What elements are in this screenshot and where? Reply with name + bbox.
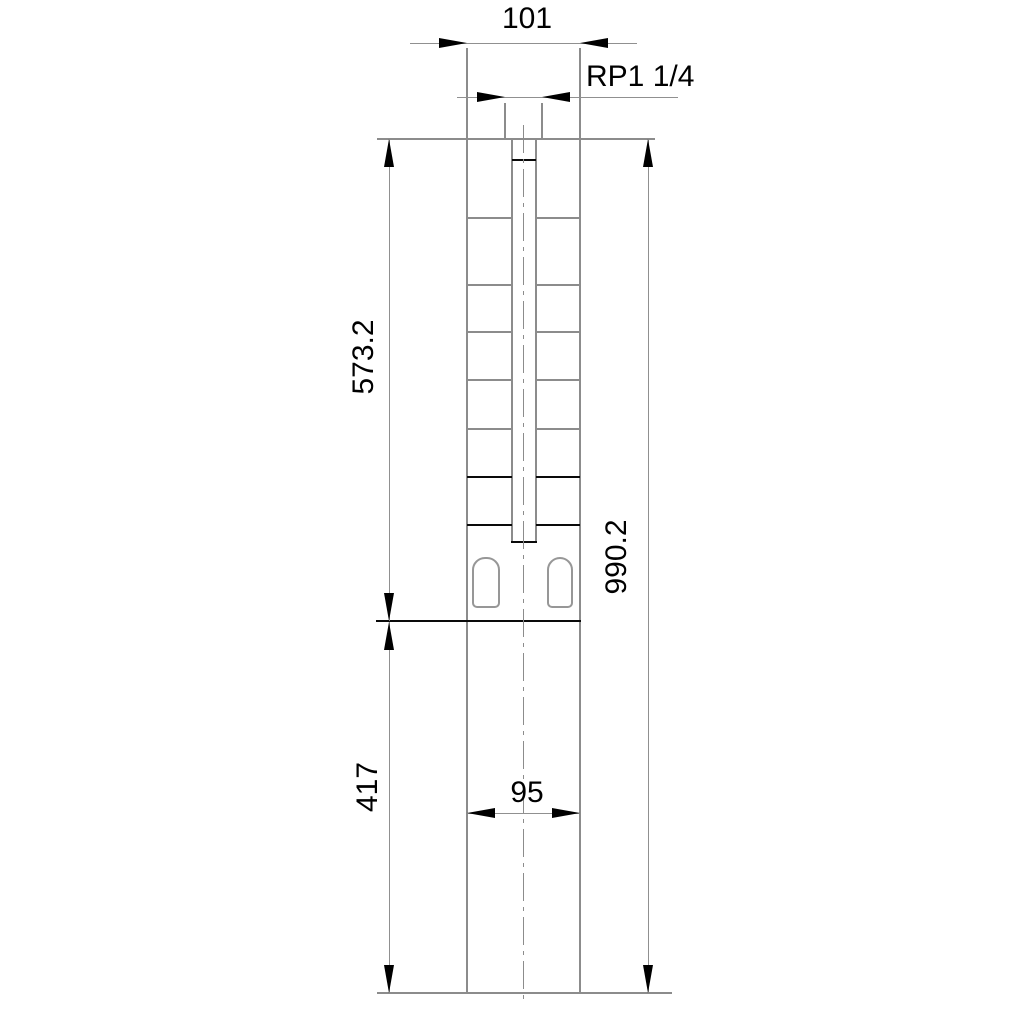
arrowhead-thread-right xyxy=(542,92,570,102)
stage-line xyxy=(467,284,512,286)
stage-line xyxy=(536,217,580,219)
pump-motor-junction-line xyxy=(376,620,581,622)
dim-line-total-length xyxy=(648,139,649,993)
dim-label-total-length: 990.2 xyxy=(602,497,632,617)
dim-label-top-width: 101 xyxy=(487,4,567,34)
dim-label-lower-length: 417 xyxy=(353,727,383,847)
thread-stub-right-edge xyxy=(541,103,543,139)
stage-line xyxy=(467,428,512,430)
body-right-edge xyxy=(579,139,581,993)
bottom-line xyxy=(377,992,672,994)
arrowhead-upper-length-top xyxy=(384,139,394,167)
center-line xyxy=(523,125,524,1005)
extension-line-top-width-left xyxy=(466,48,468,139)
body-left-edge xyxy=(466,139,468,993)
stage-line xyxy=(467,379,512,381)
arrowhead-lower-length-top xyxy=(384,622,394,650)
pipe-bottom-cap xyxy=(511,541,537,543)
dim-label-lower-width: 95 xyxy=(497,778,557,808)
arrowhead-total-length-bottom xyxy=(643,965,653,993)
arrowhead-upper-length-bottom xyxy=(384,593,394,621)
arrowhead-top-width-left xyxy=(439,38,467,48)
stage-line xyxy=(467,217,512,219)
stage-line xyxy=(536,476,580,478)
arrowhead-top-width-right xyxy=(580,38,608,48)
pipe-left-edge xyxy=(511,139,513,542)
pump-dimensional-drawing: 101 RP1 1/4 573.2 417 xyxy=(0,0,1024,1024)
stage-line xyxy=(536,524,580,526)
stage-line xyxy=(467,476,512,478)
arrowhead-lower-width-left xyxy=(467,808,495,818)
dim-line-lower-length xyxy=(389,622,390,993)
body-top-line xyxy=(377,138,655,140)
dim-label-upper-length: 573.2 xyxy=(349,297,379,417)
dim-label-thread: RP1 1/4 xyxy=(586,62,694,92)
arrowhead-total-length-top xyxy=(643,139,653,167)
intake-slot-left xyxy=(472,557,500,608)
stage-line xyxy=(536,428,580,430)
arrowhead-thread-left xyxy=(477,92,505,102)
stage-line xyxy=(536,284,580,286)
arrowhead-lower-width-right xyxy=(552,808,580,818)
thread-stub-left-edge xyxy=(504,103,506,139)
pipe-right-edge xyxy=(535,139,537,542)
stage-line xyxy=(467,524,512,526)
dim-line-upper-length xyxy=(389,139,390,621)
stage-line xyxy=(467,331,512,333)
intake-slot-right xyxy=(547,557,573,608)
arrowhead-lower-length-bottom xyxy=(384,965,394,993)
stage-line xyxy=(536,331,580,333)
stage-line xyxy=(536,379,580,381)
extension-line-top-width-right xyxy=(579,48,581,139)
thread-depth-line xyxy=(512,159,536,161)
